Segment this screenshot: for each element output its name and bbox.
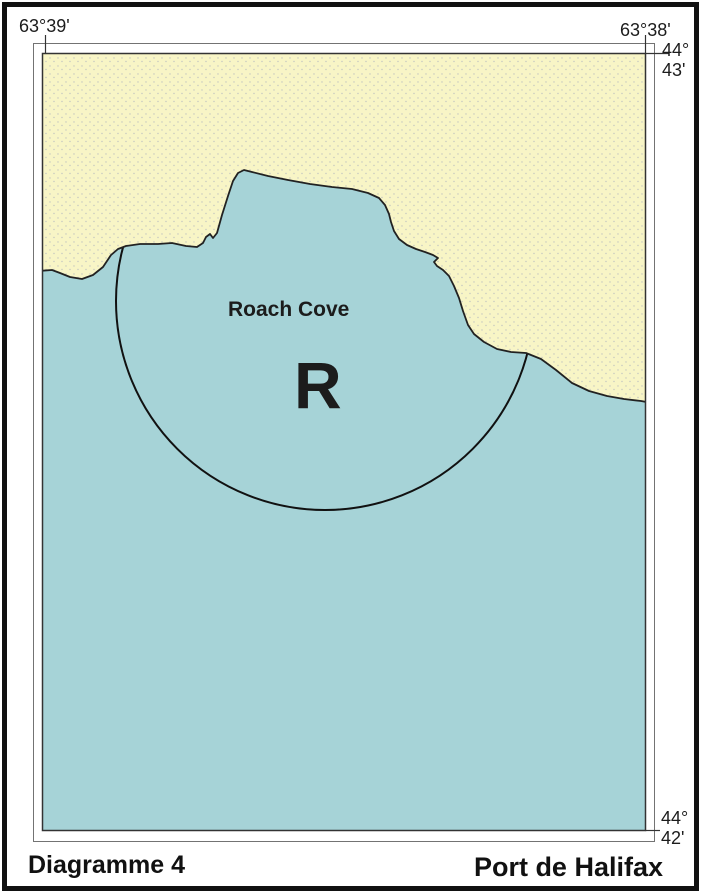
- latitude-bottom-degrees: 44°: [661, 808, 688, 828]
- chart-page: 63°39' 63°38' 44° 43' 44° 42' Roach Cove…: [0, 0, 702, 894]
- diagram-caption: Diagramme 4: [28, 853, 185, 878]
- latitude-bottom-minutes: 42': [661, 828, 688, 848]
- longitude-label-left: 63°39': [19, 16, 70, 36]
- cove-name-label: Roach Cove: [228, 299, 349, 320]
- map-canvas: [0, 0, 702, 894]
- latitude-label-bottom: 44° 42': [661, 808, 688, 848]
- latitude-top-degrees: 44°: [662, 40, 689, 60]
- latitude-label-top: 44° 43': [662, 40, 689, 80]
- latitude-top-minutes: 43': [662, 60, 689, 80]
- longitude-label-right: 63°38': [620, 20, 671, 40]
- port-caption: Port de Halifax: [474, 854, 663, 881]
- restricted-area-letter: R: [294, 352, 342, 418]
